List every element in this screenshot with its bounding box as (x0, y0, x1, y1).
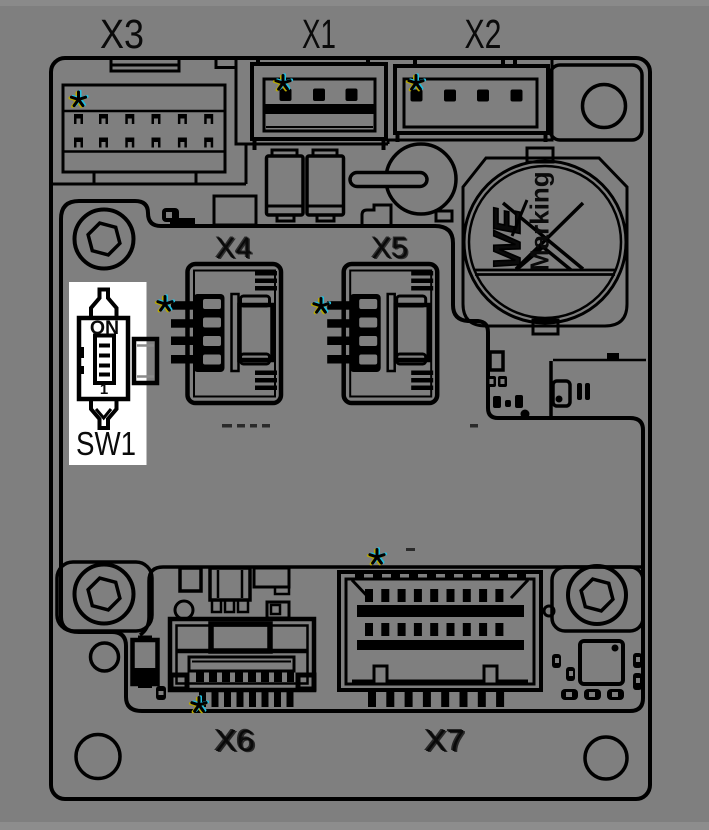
svg-text:1: 1 (100, 381, 108, 398)
svg-text:X2: X2 (465, 11, 502, 57)
svg-text:WE: WE (487, 207, 529, 269)
svg-text:X1: X1 (302, 11, 336, 57)
svg-text:X3: X3 (100, 11, 144, 57)
svg-text:X7: X7 (425, 723, 465, 758)
svg-text:SW1: SW1 (76, 425, 136, 462)
svg-text:ON: ON (90, 317, 119, 339)
svg-text:Marking: Marking (525, 171, 555, 271)
svg-text:X6: X6 (215, 723, 255, 758)
svg-text:X5: X5 (372, 232, 409, 265)
svg-text:X4: X4 (216, 232, 253, 265)
